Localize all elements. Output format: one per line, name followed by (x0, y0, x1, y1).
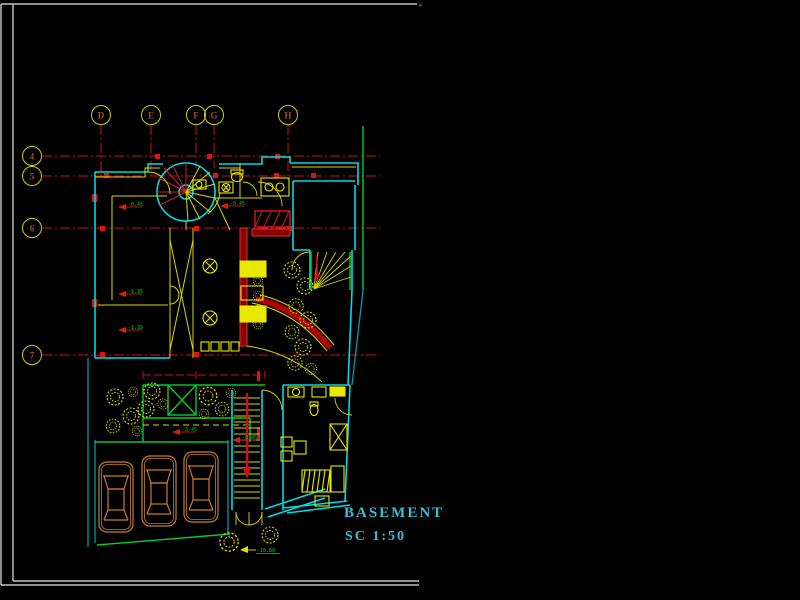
sheet-frame (1, 4, 419, 585)
svg-text:G: G (210, 111, 217, 121)
plant-icon (199, 387, 217, 405)
svg-text:-0.45: -0.45 (128, 202, 143, 208)
grid-lines (42, 125, 380, 355)
car-top-view (184, 452, 218, 522)
cad-viewport: × D E F (0, 0, 800, 600)
svg-text:-10.80: -10.80 (257, 548, 275, 554)
plant-icon (288, 356, 302, 370)
drawing-scale: SC 1:50 (345, 529, 406, 544)
cad-canvas: × D E F (0, 0, 800, 600)
car-top-view (142, 456, 176, 526)
svg-text:H: H (284, 111, 291, 121)
grid-bubble-H: H (279, 106, 298, 125)
plant-icon (253, 276, 263, 286)
parking-cars (99, 452, 218, 532)
level-annotation: -1.35 (118, 325, 143, 333)
plant-icon (285, 325, 299, 339)
plant-icon (107, 389, 123, 405)
plant-icon (262, 527, 278, 543)
plant-icon (215, 402, 229, 416)
grid-bubble-F: F (187, 106, 206, 125)
plant-icon (132, 426, 142, 436)
svg-text:4: 4 (30, 152, 35, 162)
level-annotation: -1.35 (118, 289, 143, 297)
frame-corner-mark: × (418, 2, 423, 9)
plant-icon (220, 533, 238, 551)
grid-bubble-G: G (205, 106, 224, 125)
grid-bubble-D: D (92, 106, 111, 125)
svg-text:7: 7 (30, 351, 35, 361)
dimension-lines (143, 371, 265, 379)
grid-bubble-E: E (142, 106, 161, 125)
plant-icon (289, 299, 303, 313)
plant-icon (123, 408, 139, 424)
svg-text:F: F (193, 111, 199, 121)
car-top-view (99, 462, 133, 532)
level-annotation: -0.45 (118, 202, 143, 210)
level-annotation: -3.45 (172, 427, 197, 435)
plant-icon (158, 399, 168, 409)
plant-icon (295, 339, 311, 355)
grid-bubble-4: 4 (23, 147, 42, 166)
svg-text:-0.45: -0.45 (242, 435, 257, 441)
svg-text:-0.45: -0.45 (230, 201, 245, 207)
level-annotation: -10.80 (240, 546, 280, 554)
svg-text:6: 6 (30, 224, 35, 234)
svg-text:-1.35: -1.35 (128, 325, 143, 331)
level-annotation: -0.45 (220, 201, 245, 209)
grid-bubble-5: 5 (23, 167, 42, 186)
plant-icon (226, 388, 236, 398)
plant-icon (138, 401, 154, 417)
drawing-title: BASEMENT (344, 505, 444, 521)
plant-icon (128, 387, 138, 397)
winder-stair (314, 252, 351, 289)
level-annotation: -0.45 (232, 435, 257, 443)
plant-icon (106, 419, 120, 433)
svg-text:-3.45: -3.45 (182, 427, 197, 433)
svg-text:5: 5 (30, 172, 35, 182)
svg-text:D: D (98, 111, 105, 121)
svg-text:E: E (148, 111, 154, 121)
grid-bubble-6: 6 (23, 219, 42, 238)
grid-bubble-7: 7 (23, 346, 42, 365)
svg-text:-1.35: -1.35 (128, 289, 143, 295)
